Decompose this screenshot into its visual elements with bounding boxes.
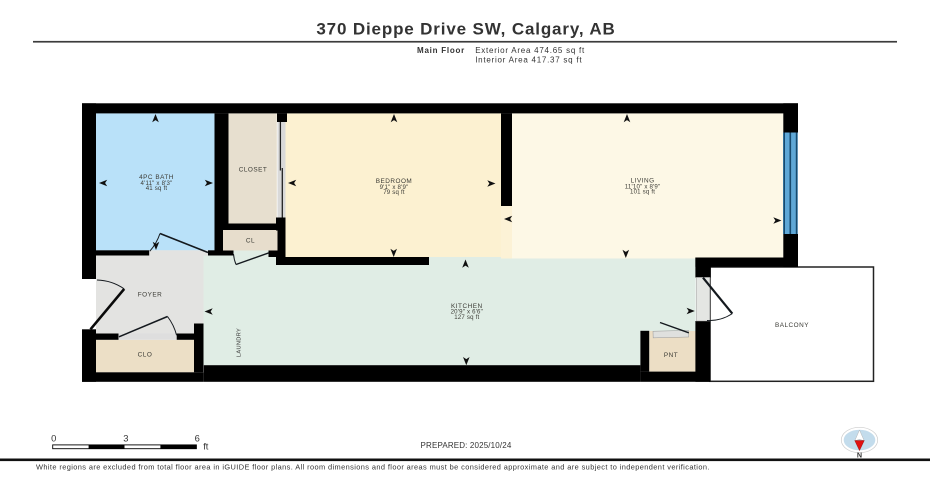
svg-text:0: 0 xyxy=(51,433,56,444)
svg-text:CLO: CLO xyxy=(138,352,153,359)
svg-text:White regions are excluded fro: White regions are excluded from total fl… xyxy=(36,463,710,472)
svg-text:3: 3 xyxy=(123,433,128,444)
svg-text:Exterior Area 474.65 sq ft: Exterior Area 474.65 sq ft xyxy=(475,46,585,55)
svg-text:127 sq ft: 127 sq ft xyxy=(454,314,479,321)
svg-text:CLOSET: CLOSET xyxy=(239,167,268,174)
svg-text:FOYER: FOYER xyxy=(138,292,163,299)
svg-text:N: N xyxy=(857,450,862,459)
svg-text:LAUNDRY: LAUNDRY xyxy=(237,328,243,357)
svg-text:79 sq ft: 79 sq ft xyxy=(383,189,405,196)
svg-text:CL: CL xyxy=(246,238,255,245)
svg-text:PREPARED: 2025/10/24: PREPARED: 2025/10/24 xyxy=(421,441,512,450)
svg-text:Main Floor: Main Floor xyxy=(417,46,465,55)
svg-text:ft: ft xyxy=(203,440,209,451)
svg-text:41 sq ft: 41 sq ft xyxy=(146,185,168,192)
svg-text:Interior Area 417.37 sq ft: Interior Area 417.37 sq ft xyxy=(475,56,582,65)
svg-text:370 Dieppe Drive SW, Calgary,: 370 Dieppe Drive SW, Calgary, AB xyxy=(316,19,615,38)
svg-text:PNT: PNT xyxy=(664,352,678,359)
svg-text:BALCONY: BALCONY xyxy=(775,322,809,329)
svg-text:101 sq ft: 101 sq ft xyxy=(630,189,655,196)
svg-text:6: 6 xyxy=(195,433,200,444)
